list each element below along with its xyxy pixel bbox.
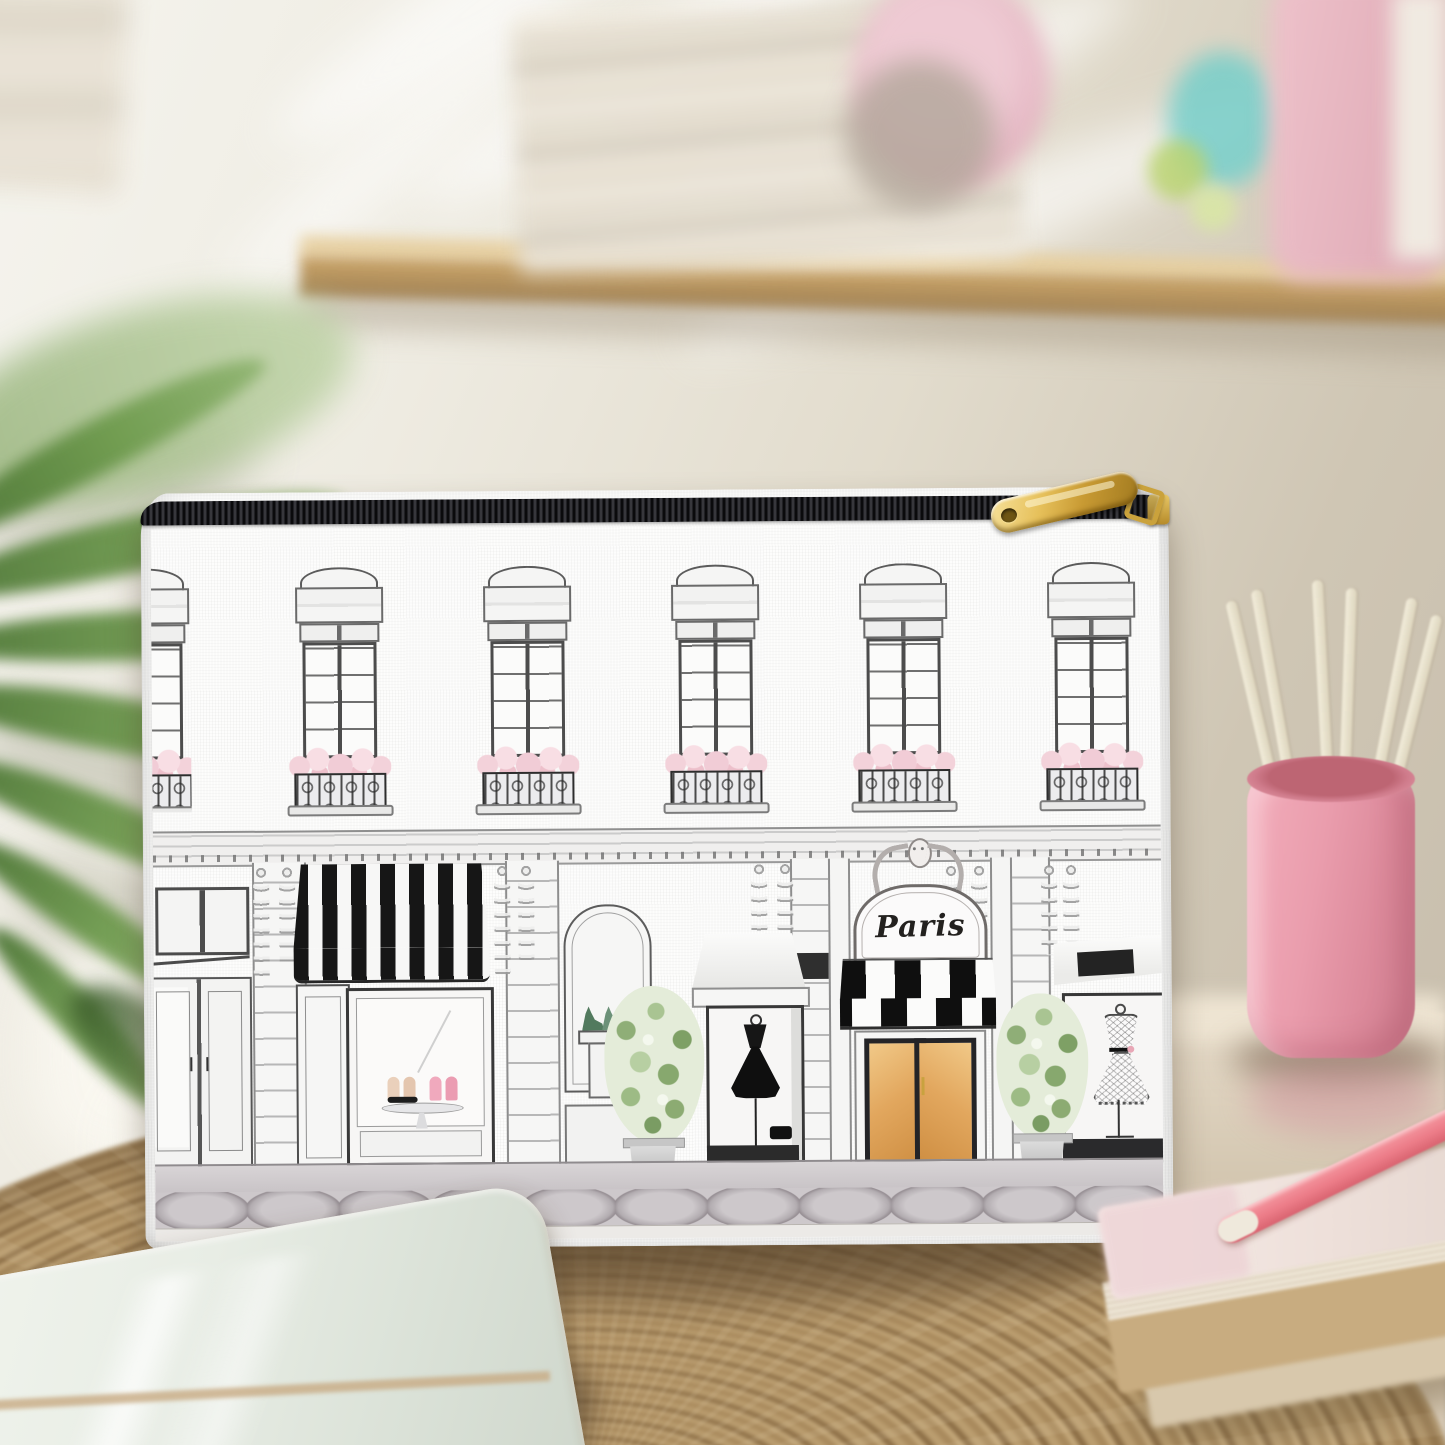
paris-window bbox=[295, 567, 385, 812]
mannequin-pole bbox=[755, 1098, 757, 1150]
paris-window bbox=[671, 564, 761, 809]
white-stick-decor bbox=[1392, 0, 1445, 260]
dressform-neck-knob bbox=[1115, 1004, 1126, 1015]
green-bokeh bbox=[1190, 185, 1236, 231]
phone-screen-sheen bbox=[0, 1238, 421, 1445]
display-window bbox=[346, 987, 495, 1166]
door-right bbox=[914, 1038, 977, 1166]
pink-cup-rim bbox=[1247, 756, 1415, 802]
paris-sign: Paris bbox=[853, 884, 988, 967]
black-bows bbox=[388, 1097, 418, 1103]
dressform-feet bbox=[1106, 1136, 1134, 1138]
dress-skirt bbox=[729, 1046, 781, 1098]
paris-entrance bbox=[854, 1030, 987, 1169]
accessory-pouch: Paris bbox=[140, 486, 1173, 1249]
paris-awning-canopy bbox=[840, 958, 996, 1001]
boutique-door bbox=[296, 984, 351, 1170]
right-awning-shadow bbox=[1077, 949, 1134, 976]
door-handle bbox=[921, 1077, 924, 1095]
pink-heel-shoe bbox=[429, 1077, 441, 1101]
black-clutch-bag bbox=[770, 1126, 792, 1139]
garland-pair bbox=[1041, 863, 1042, 955]
grey-ornament bbox=[845, 60, 995, 210]
garland-pair bbox=[494, 864, 495, 978]
storefront-print: Paris bbox=[151, 522, 1164, 1241]
paris-window bbox=[1047, 562, 1137, 807]
paris-window bbox=[483, 566, 573, 811]
dressform-pole bbox=[1118, 1100, 1120, 1138]
armoire-top-window bbox=[155, 887, 249, 956]
zipper-pull bbox=[995, 478, 1195, 543]
pink-cup bbox=[1247, 770, 1415, 1058]
paris-sign-text: Paris bbox=[856, 908, 985, 946]
white-awning-canopy bbox=[691, 933, 805, 990]
paris-window bbox=[859, 563, 949, 808]
striped-awning-canopy bbox=[293, 863, 490, 948]
product-photo-scene: Paris bbox=[0, 0, 1445, 1445]
dress-bodice bbox=[742, 1024, 768, 1048]
pink-heel-shoe bbox=[445, 1076, 457, 1100]
dressform-skirt-cage bbox=[1093, 1052, 1149, 1105]
paris-awning-valance bbox=[840, 998, 996, 1030]
paris-window-partial bbox=[151, 568, 192, 812]
book-stack-corner bbox=[0, 0, 131, 195]
striped-awning-valance bbox=[294, 947, 490, 983]
pink-flower-accent bbox=[1127, 1046, 1134, 1053]
armoire-doors bbox=[151, 977, 253, 1173]
garland-pair bbox=[253, 866, 254, 984]
